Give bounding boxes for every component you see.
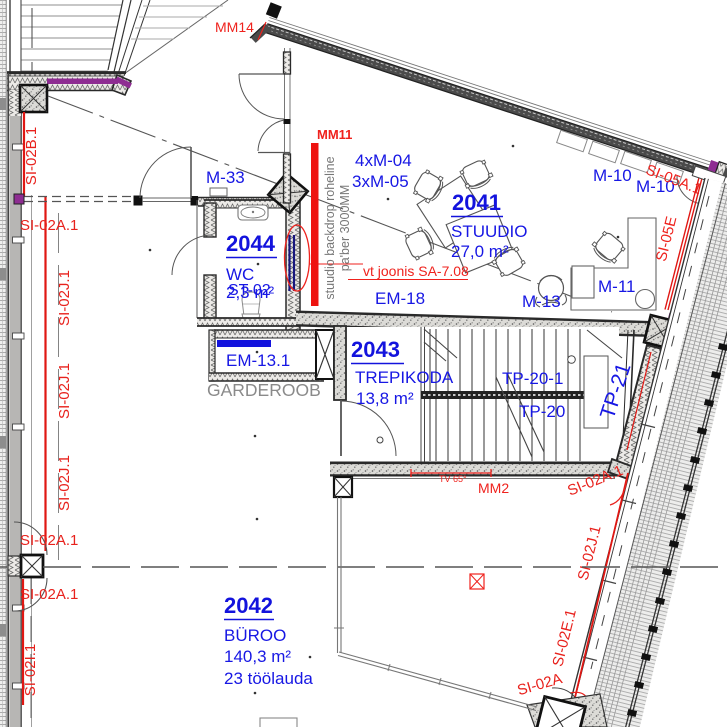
svg-text:MM14: MM14: [215, 19, 254, 35]
svg-text:M-10: M-10: [593, 166, 632, 185]
svg-text:SI-02J.1: SI-02J.1: [56, 455, 73, 511]
svg-text:SI-02A.1: SI-02A.1: [20, 586, 78, 603]
svg-text:BÜROO: BÜROO: [224, 626, 286, 645]
svg-text:TV 65°: TV 65°: [439, 474, 467, 484]
svg-text:EM-18: EM-18: [375, 289, 425, 308]
svg-text:SI-02J.1: SI-02J.1: [56, 270, 73, 326]
svg-text:MM11: MM11: [317, 127, 352, 142]
svg-text:MM2: MM2: [478, 480, 509, 496]
svg-text:M-13: M-13: [522, 292, 561, 311]
svg-text:27,0 m²: 27,0 m²: [451, 242, 509, 261]
svg-text:SI-02I.1: SI-02I.1: [22, 644, 39, 697]
svg-text:M-33: M-33: [206, 168, 245, 187]
svg-text:2043: 2043: [351, 337, 400, 362]
svg-text:2042: 2042: [224, 593, 273, 618]
svg-text:STUUDIO: STUUDIO: [451, 222, 528, 241]
svg-text:2041: 2041: [452, 190, 501, 215]
svg-text:4xM-04: 4xM-04: [355, 151, 412, 170]
svg-text:TP-20: TP-20: [519, 402, 565, 421]
svg-text:2044: 2044: [226, 231, 276, 256]
svg-text:EM-13.1: EM-13.1: [226, 351, 290, 370]
svg-text:3xM-05: 3xM-05: [352, 172, 409, 191]
svg-text:vt joonis SA-7.08: vt joonis SA-7.08: [363, 263, 469, 279]
svg-text:SI-02J.1: SI-02J.1: [56, 363, 73, 419]
svg-text:SI-02A.1: SI-02A.1: [20, 532, 78, 549]
svg-text:13,8 m²: 13,8 m²: [356, 389, 414, 408]
svg-text:GARDEROOB: GARDEROOB: [207, 380, 321, 400]
svg-text:TREPIKODA: TREPIKODA: [355, 368, 454, 387]
svg-text:SI-02A.1: SI-02A.1: [20, 217, 78, 234]
svg-text:stuudio backdrop roheline: stuudio backdrop roheline: [323, 156, 337, 299]
svg-text:23 töölauda: 23 töölauda: [224, 669, 313, 688]
svg-text:ST-02: ST-02: [228, 282, 271, 299]
svg-text:pa'ber 3000MM: pa'ber 3000MM: [338, 185, 352, 271]
svg-text:M-11: M-11: [598, 277, 635, 296]
svg-text:140,3 m²: 140,3 m²: [224, 647, 291, 666]
svg-text:SI-02B.1: SI-02B.1: [23, 127, 40, 185]
svg-text:TP-20-1: TP-20-1: [502, 369, 563, 388]
